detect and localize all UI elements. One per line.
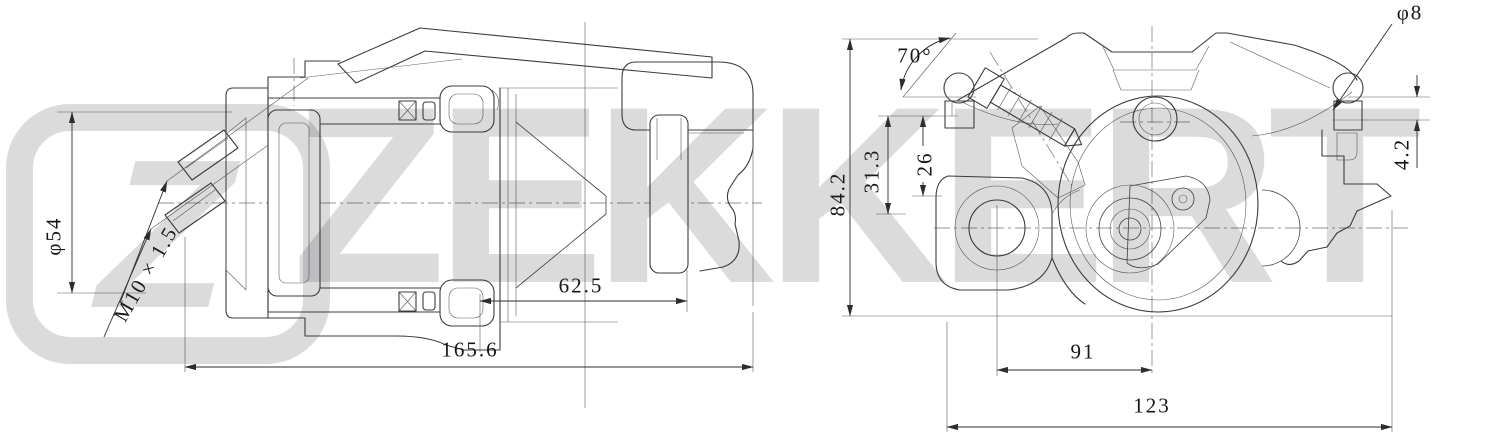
bleeder-axis-centerline: [990, 52, 1072, 186]
piston-seals: [399, 101, 435, 311]
adjuster-mechanism: [1086, 176, 1210, 273]
dim-height-31-3: 31.3: [860, 149, 885, 194]
dim-overall-height: 84.2: [826, 172, 851, 217]
left-mounting-ear: [936, 176, 1085, 304]
guide-pin-boss: [650, 115, 688, 273]
guide-pin-bosses: [944, 73, 1363, 160]
caliper-bridge-section: [338, 28, 712, 83]
upper-hole: [1133, 97, 1177, 141]
side-section-view: [57, 22, 762, 408]
right-bracket-profile: [1262, 130, 1391, 266]
cylinder-bore-outline: [1058, 96, 1258, 312]
dim-center-distance: 91: [1071, 340, 1096, 365]
top-bridge: [958, 33, 1357, 136]
dim-height-26: 26: [913, 152, 938, 177]
dim-pin-diameter: φ8: [1397, 1, 1424, 26]
dust-boot: [440, 86, 499, 326]
technical-drawing-page: φ54 M10 × 1.5 62.5 165.6 84.2 31.3 26 70…: [0, 0, 1500, 435]
dim-piston-diameter: φ54: [42, 216, 67, 255]
bleeder-screw: [968, 68, 1090, 198]
piston-section: [268, 110, 320, 296]
dim-length-62-5: 62.5: [559, 274, 604, 299]
caliper-technical-drawing: [0, 0, 1500, 435]
dim-mount-spacing: 123: [1133, 394, 1171, 419]
dim-overall-length: 165.6: [441, 338, 498, 363]
dim-bleeder-angle: 70°: [897, 44, 932, 69]
front-view: [842, 24, 1430, 432]
dim-offset-4-2: 4.2: [1390, 138, 1415, 170]
